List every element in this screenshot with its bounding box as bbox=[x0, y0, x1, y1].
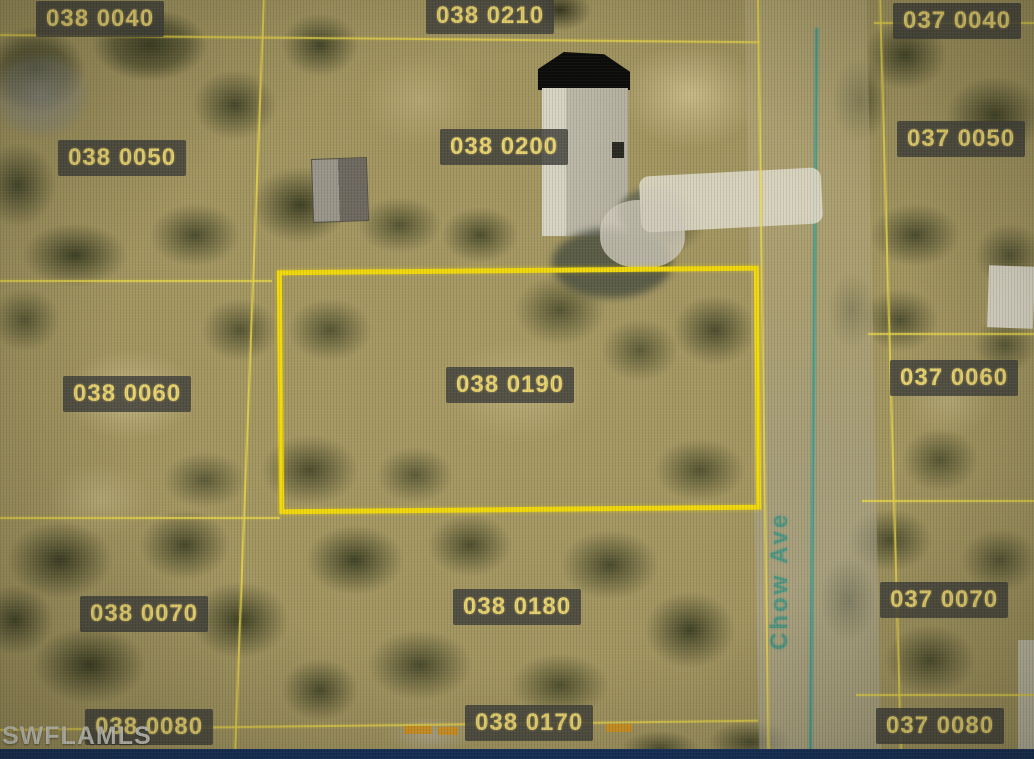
shed-structure bbox=[311, 157, 369, 223]
lot-line-marker bbox=[438, 727, 458, 735]
photo-frame-strip bbox=[0, 749, 1034, 759]
parcel-label: 038 0210 bbox=[426, 0, 554, 34]
neighboring-structure bbox=[987, 265, 1034, 329]
parcel-label-highlighted: 038 0190 bbox=[446, 367, 574, 403]
mls-watermark: SWFLAMLS bbox=[2, 722, 152, 751]
parcel-label: 037 0060 bbox=[890, 360, 1018, 396]
street-name-label: Chow Ave bbox=[766, 512, 794, 650]
aerial-parcel-map-photo: 038 0040 038 0210 037 0040 038 0050 038 … bbox=[0, 0, 1034, 759]
lot-line-marker bbox=[404, 726, 432, 734]
parcel-boundary-line bbox=[856, 694, 1034, 696]
parcel-label: 037 0080 bbox=[876, 708, 1004, 744]
parcel-label: 037 0050 bbox=[897, 121, 1025, 157]
parcel-label: 038 0200 bbox=[440, 129, 568, 165]
pavement-strip bbox=[1018, 640, 1034, 759]
parcel-label: 038 0050 bbox=[58, 140, 186, 176]
parcel-boundary-line bbox=[868, 333, 1034, 335]
parcel-boundary-line bbox=[0, 280, 272, 282]
lot-line-marker bbox=[606, 724, 632, 732]
parcel-label: 037 0040 bbox=[893, 3, 1021, 39]
parcel-boundary-line bbox=[862, 500, 1034, 502]
parcel-label: 038 0170 bbox=[465, 705, 593, 741]
parcel-label: 038 0040 bbox=[36, 1, 164, 37]
parcel-label: 037 0070 bbox=[880, 582, 1008, 618]
parcel-boundary-line bbox=[0, 517, 280, 519]
parcel-label: 038 0060 bbox=[63, 376, 191, 412]
parcel-label: 038 0180 bbox=[453, 589, 581, 625]
parcel-label: 038 0070 bbox=[80, 596, 208, 632]
building-roof-vent bbox=[612, 142, 624, 158]
driveway bbox=[600, 200, 685, 268]
